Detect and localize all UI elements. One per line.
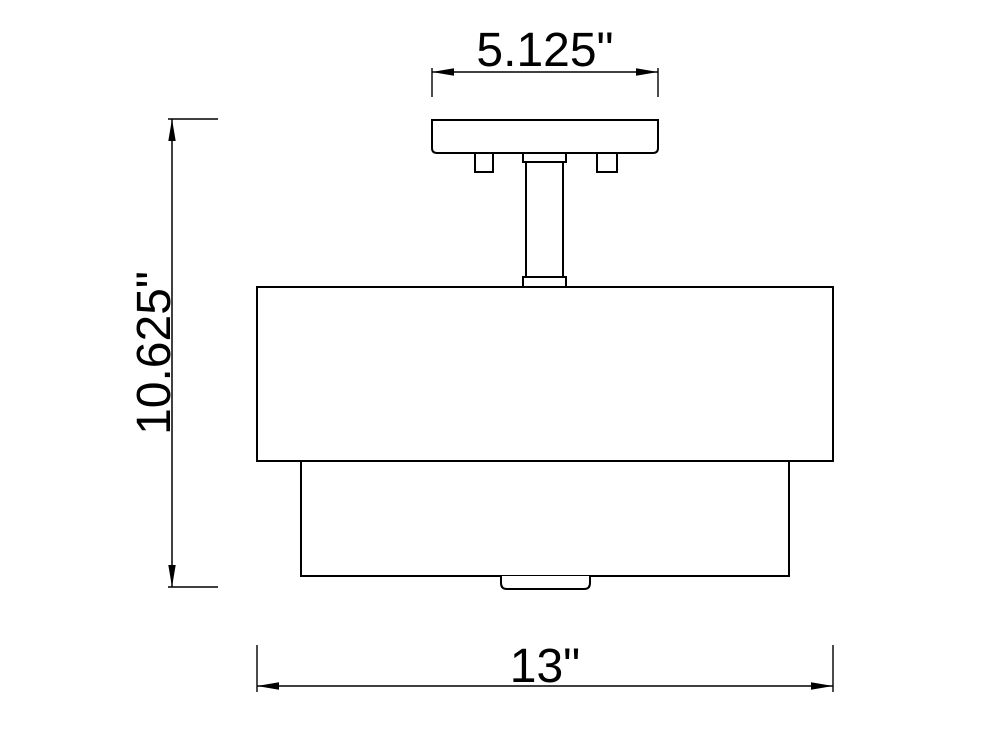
stem-bottom-collar [523,277,566,287]
canopy-width-label: 5.125" [476,24,613,77]
right-mounting-screw [597,153,617,172]
outer-drum-shade [257,287,833,461]
canopy-plate [432,120,658,153]
bottom-finial [501,576,590,589]
drawing-canvas: 5.125" 10.625" 13" [0,0,1000,750]
stem-body [526,162,563,277]
stem-top-collar [523,153,566,162]
fixture-dimension-drawing: 5.125" 10.625" 13" [0,0,1000,750]
inner-drum-shade [301,461,789,576]
dimension-canopy-width: 5.125" [432,24,658,97]
shade-width-label: 13" [510,640,580,693]
dimension-overall-height: 10.625" [128,119,218,587]
fixture-outline [257,120,833,589]
dimension-shade-width: 13" [257,640,833,693]
left-mounting-screw [475,153,493,172]
overall-height-label: 10.625" [128,271,181,435]
